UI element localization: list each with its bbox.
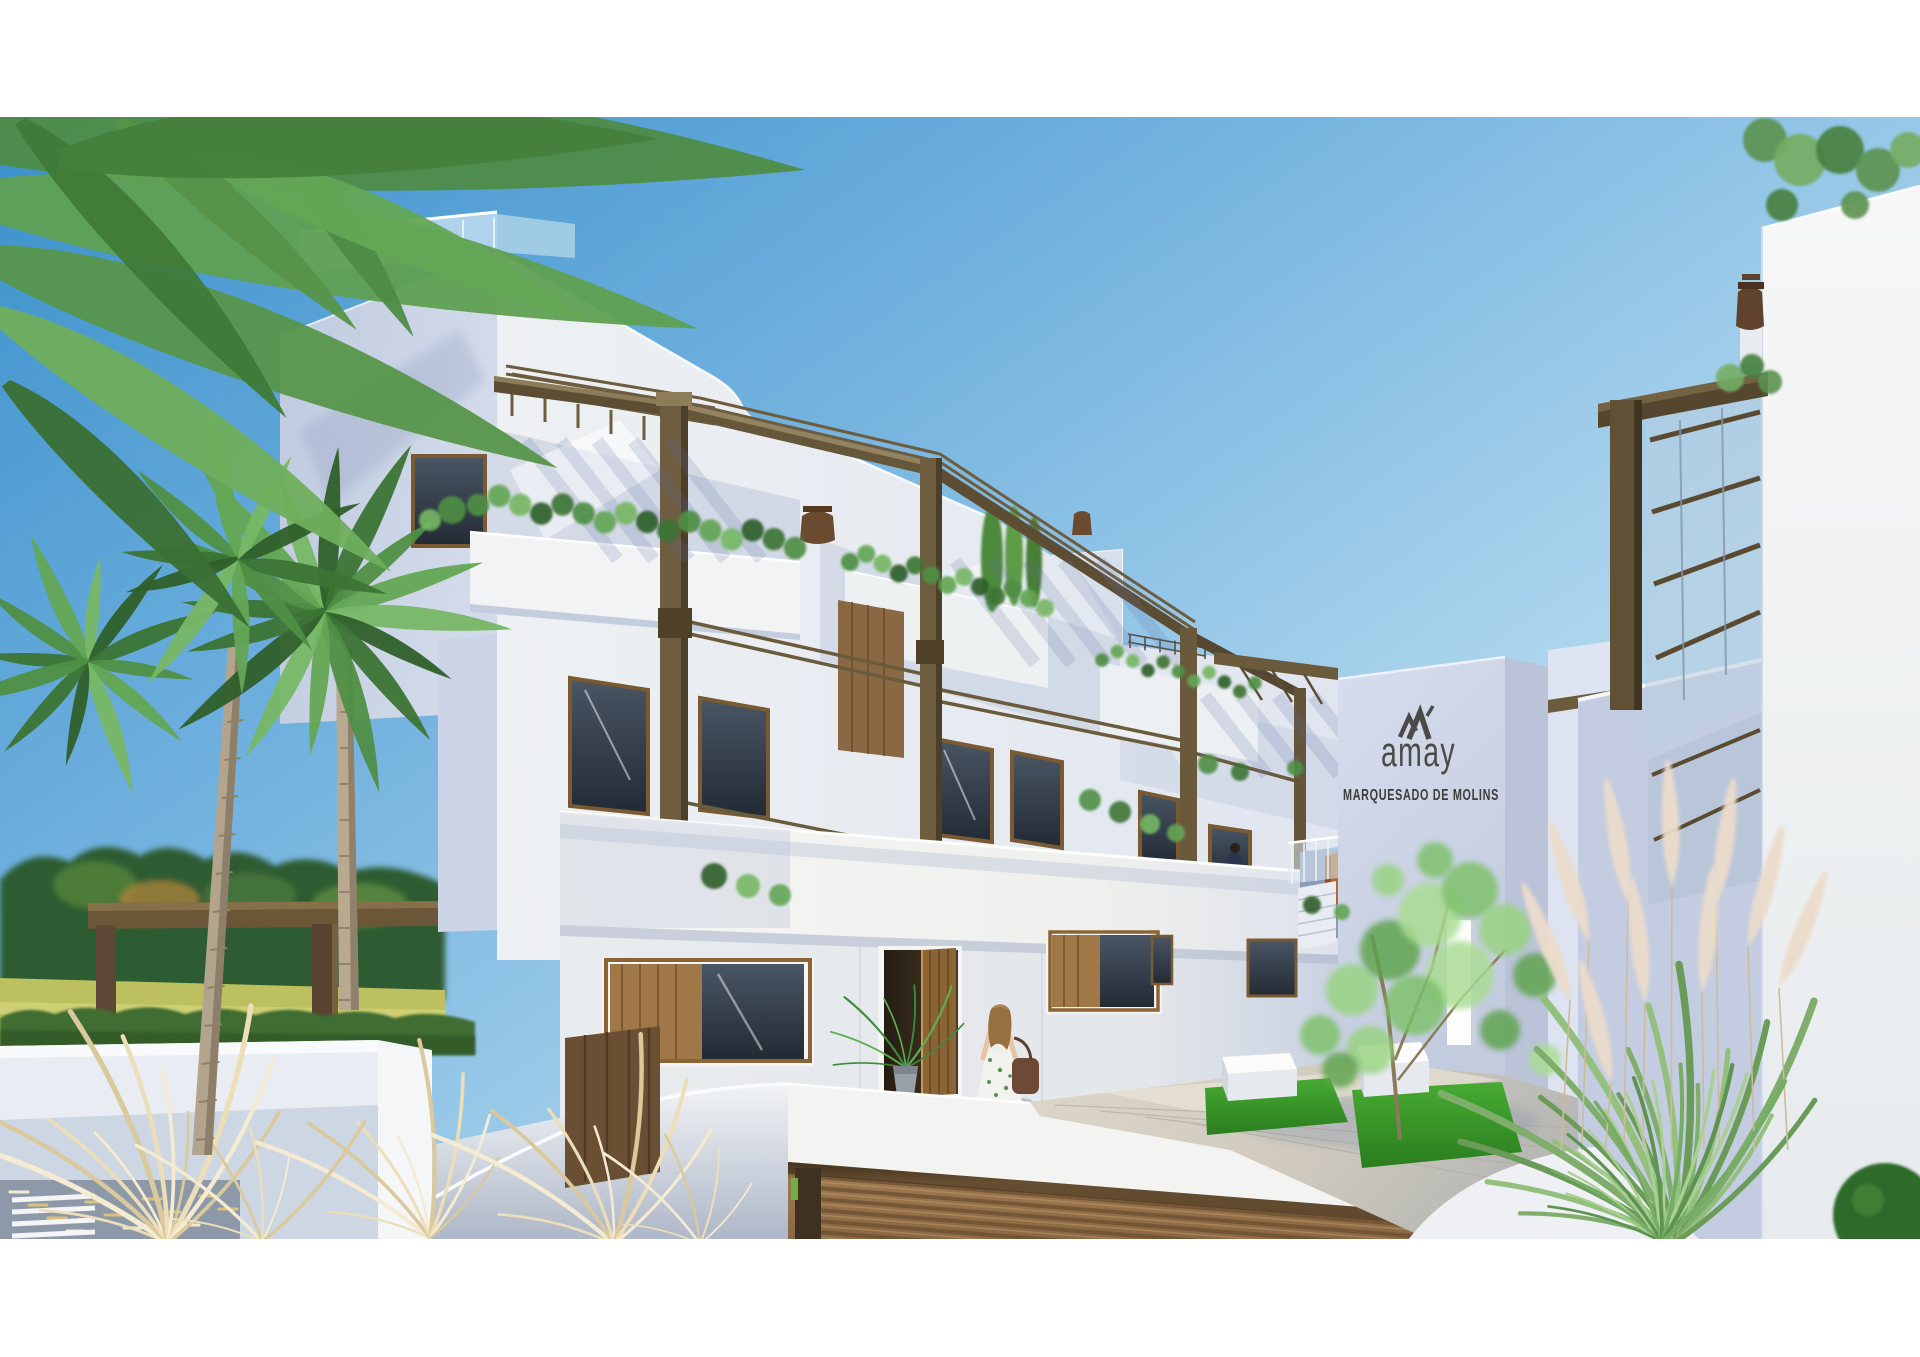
architectural-render: amay MARQUESADO DE MOLINS xyxy=(0,0,1920,1357)
development-name: MARQUESADO DE MOLINS xyxy=(1343,787,1499,804)
left-landscape xyxy=(0,847,475,1056)
roof-urn-right xyxy=(1736,274,1764,364)
brand-name: amay xyxy=(1381,728,1456,775)
render-viewport: amay MARQUESADO DE MOLINS xyxy=(0,0,1920,1357)
stairs xyxy=(1298,881,1336,950)
entrance-door xyxy=(878,946,962,1096)
stair-railing xyxy=(1288,837,1338,884)
window-right xyxy=(1046,930,1162,1014)
wood-side-panel xyxy=(565,1026,660,1188)
bench xyxy=(1222,1053,1297,1101)
photo-scene: amay MARQUESADO DE MOLINS xyxy=(0,13,1920,1299)
letterbox-bottom xyxy=(0,1239,1920,1357)
letterbox-top xyxy=(0,0,1920,117)
